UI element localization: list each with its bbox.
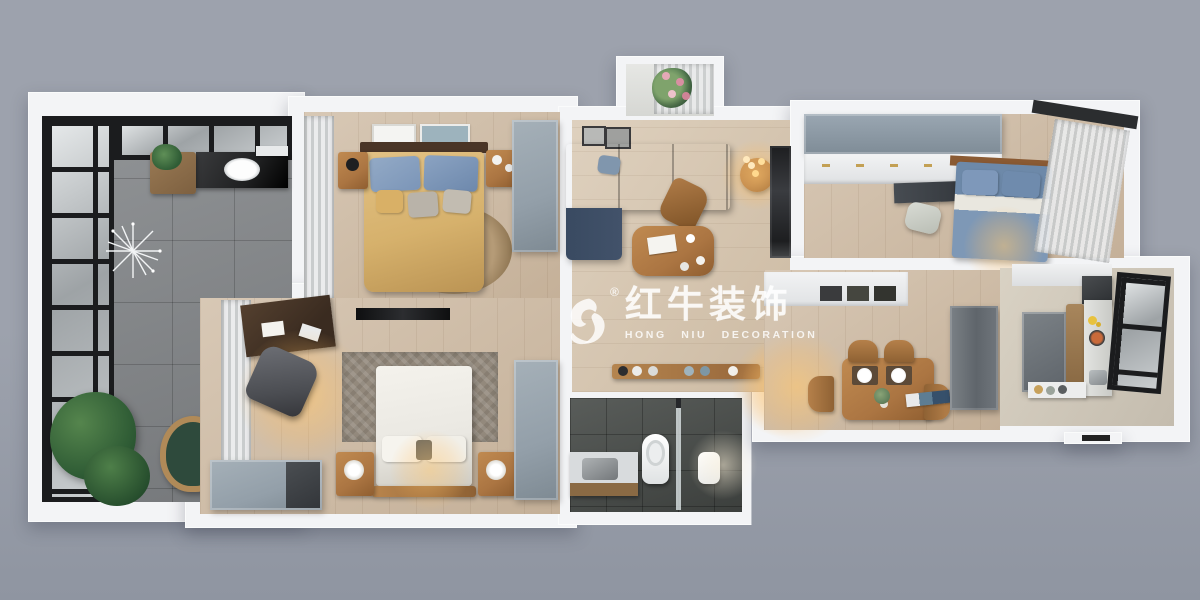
toilet-seat <box>646 440 665 466</box>
sunroom-sink <box>224 158 260 181</box>
master-pillow-gray-small-2 <box>442 189 472 214</box>
watermark-text: 红牛装饰 HONG NIU DECORATION <box>625 284 818 341</box>
dining-plate-2 <box>891 368 906 383</box>
bath-sink <box>582 458 618 480</box>
sunroom-plant-large-2 <box>84 446 150 506</box>
balcony-flower-blossoms <box>662 72 670 80</box>
kitchen-corn <box>1088 316 1097 325</box>
dining-wall-trays <box>820 286 842 301</box>
kitchen-fruits <box>1034 385 1043 394</box>
master-wardrobe <box>512 120 558 252</box>
kitchen-wood-panel <box>1066 304 1084 384</box>
third-pillow-left <box>962 170 998 196</box>
floorplan-render: ® 红牛装饰 HONG NIU DECORATION <box>0 0 1200 600</box>
master-lamp-left <box>346 158 359 171</box>
kitchen-pan <box>1089 330 1105 346</box>
watermark: ® 红牛装饰 HONG NIU DECORATION <box>562 284 817 352</box>
bath-light-glow <box>688 430 758 500</box>
brand-subtitle: HONG NIU DECORATION <box>625 329 818 341</box>
sunroom-mirror-cabinet <box>256 146 288 156</box>
hall-decor-objects <box>618 366 628 376</box>
bull-logo-icon <box>562 292 616 352</box>
second-desk <box>240 295 336 358</box>
dining-plate-1 <box>857 368 872 383</box>
sofa-cushion <box>597 155 621 176</box>
master-curtain <box>304 116 334 302</box>
second-tv <box>356 308 450 320</box>
dining-chair-top-2 <box>884 340 914 362</box>
second-desk-book <box>261 321 285 338</box>
side-table <box>740 158 774 192</box>
kitchen-vent-strip <box>1082 435 1110 441</box>
master-lamp-right <box>492 155 502 165</box>
third-cabinet-handles <box>822 164 830 167</box>
second-bed-throw <box>416 440 432 460</box>
coffee-table-cups <box>686 234 695 243</box>
dining-vase-flowers <box>874 388 890 404</box>
master-pillow-blue-right <box>423 155 478 192</box>
sputnik-chandelier-icon <box>104 222 162 280</box>
second-bed <box>376 366 472 486</box>
sunroom-shelf-plant-icon <box>152 144 182 170</box>
kitchen-tall-cabinet <box>1022 312 1066 392</box>
pendant-lamp-icon <box>748 162 755 169</box>
second-pillow-right <box>426 436 466 462</box>
second-lamp-right-icon <box>486 460 506 480</box>
master-pillow-yellow-small <box>376 190 403 213</box>
dining-chair-top-1 <box>848 340 878 362</box>
shower-glass-panel <box>676 398 681 510</box>
third-pillow-right <box>1001 170 1041 198</box>
registered-mark: ® <box>610 286 619 298</box>
brand-title: 红牛装饰 <box>625 284 818 326</box>
leaning-art-frames <box>582 126 606 146</box>
living-tv-wall <box>770 146 791 258</box>
kitchen-window <box>1107 272 1171 394</box>
dining-fridge <box>950 306 998 410</box>
kitchen-sink <box>1089 370 1107 385</box>
third-wardrobe-top <box>804 114 1002 154</box>
second-wardrobe <box>514 360 558 500</box>
second-lamp-left-icon <box>344 460 364 480</box>
master-pillow-blue-left <box>369 156 421 193</box>
dining-chair-left <box>808 376 834 412</box>
master-pillow-gray-small-1 <box>407 191 439 218</box>
second-dresser-decor <box>286 462 320 508</box>
hall-console-shelf <box>612 364 760 379</box>
sofa-chaise <box>566 208 622 260</box>
second-bed-base <box>372 486 476 497</box>
